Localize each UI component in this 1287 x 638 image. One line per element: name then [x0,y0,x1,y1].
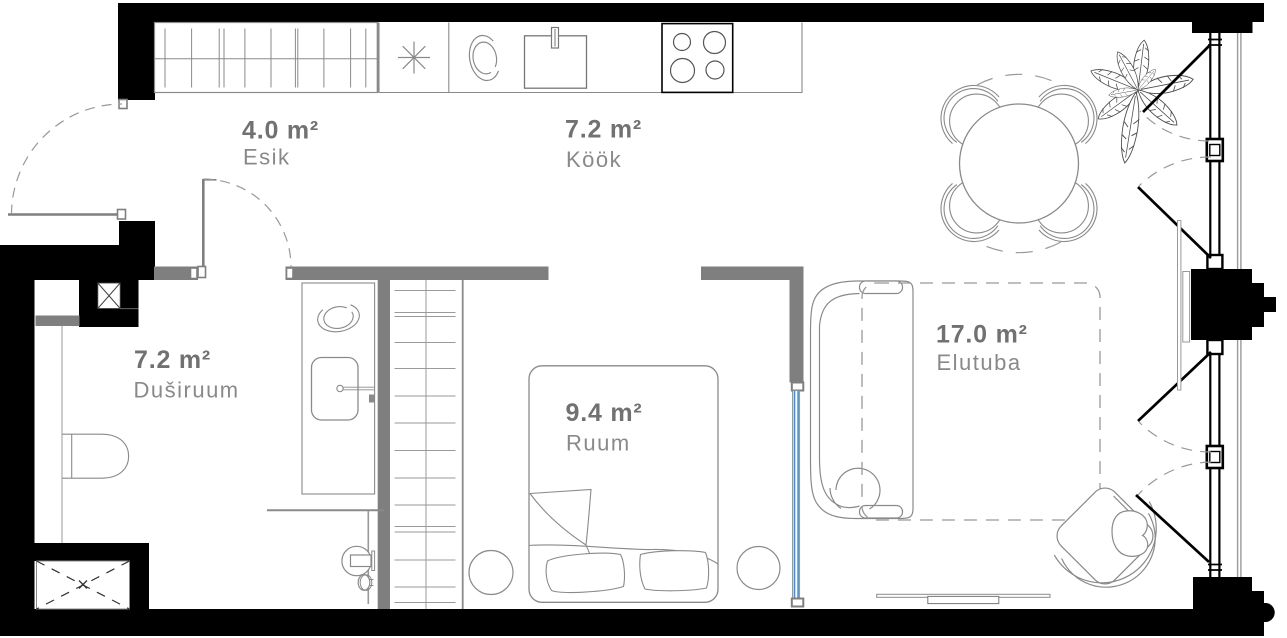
svg-text:9.4 m²: 9.4 m² [566,399,643,427]
svg-text:Elutuba: Elutuba [937,350,1022,375]
svg-text:Ruum: Ruum [566,431,631,456]
svg-text:7.2 m²: 7.2 m² [565,116,642,144]
svg-text:4.0 m²: 4.0 m² [242,117,319,145]
svg-text:Köök: Köök [566,147,622,172]
svg-text:17.0 m²: 17.0 m² [936,321,1028,349]
svg-text:7.2 m²: 7.2 m² [134,346,211,374]
svg-text:Esik: Esik [243,145,291,170]
svg-text:Duširuum: Duširuum [134,378,240,403]
